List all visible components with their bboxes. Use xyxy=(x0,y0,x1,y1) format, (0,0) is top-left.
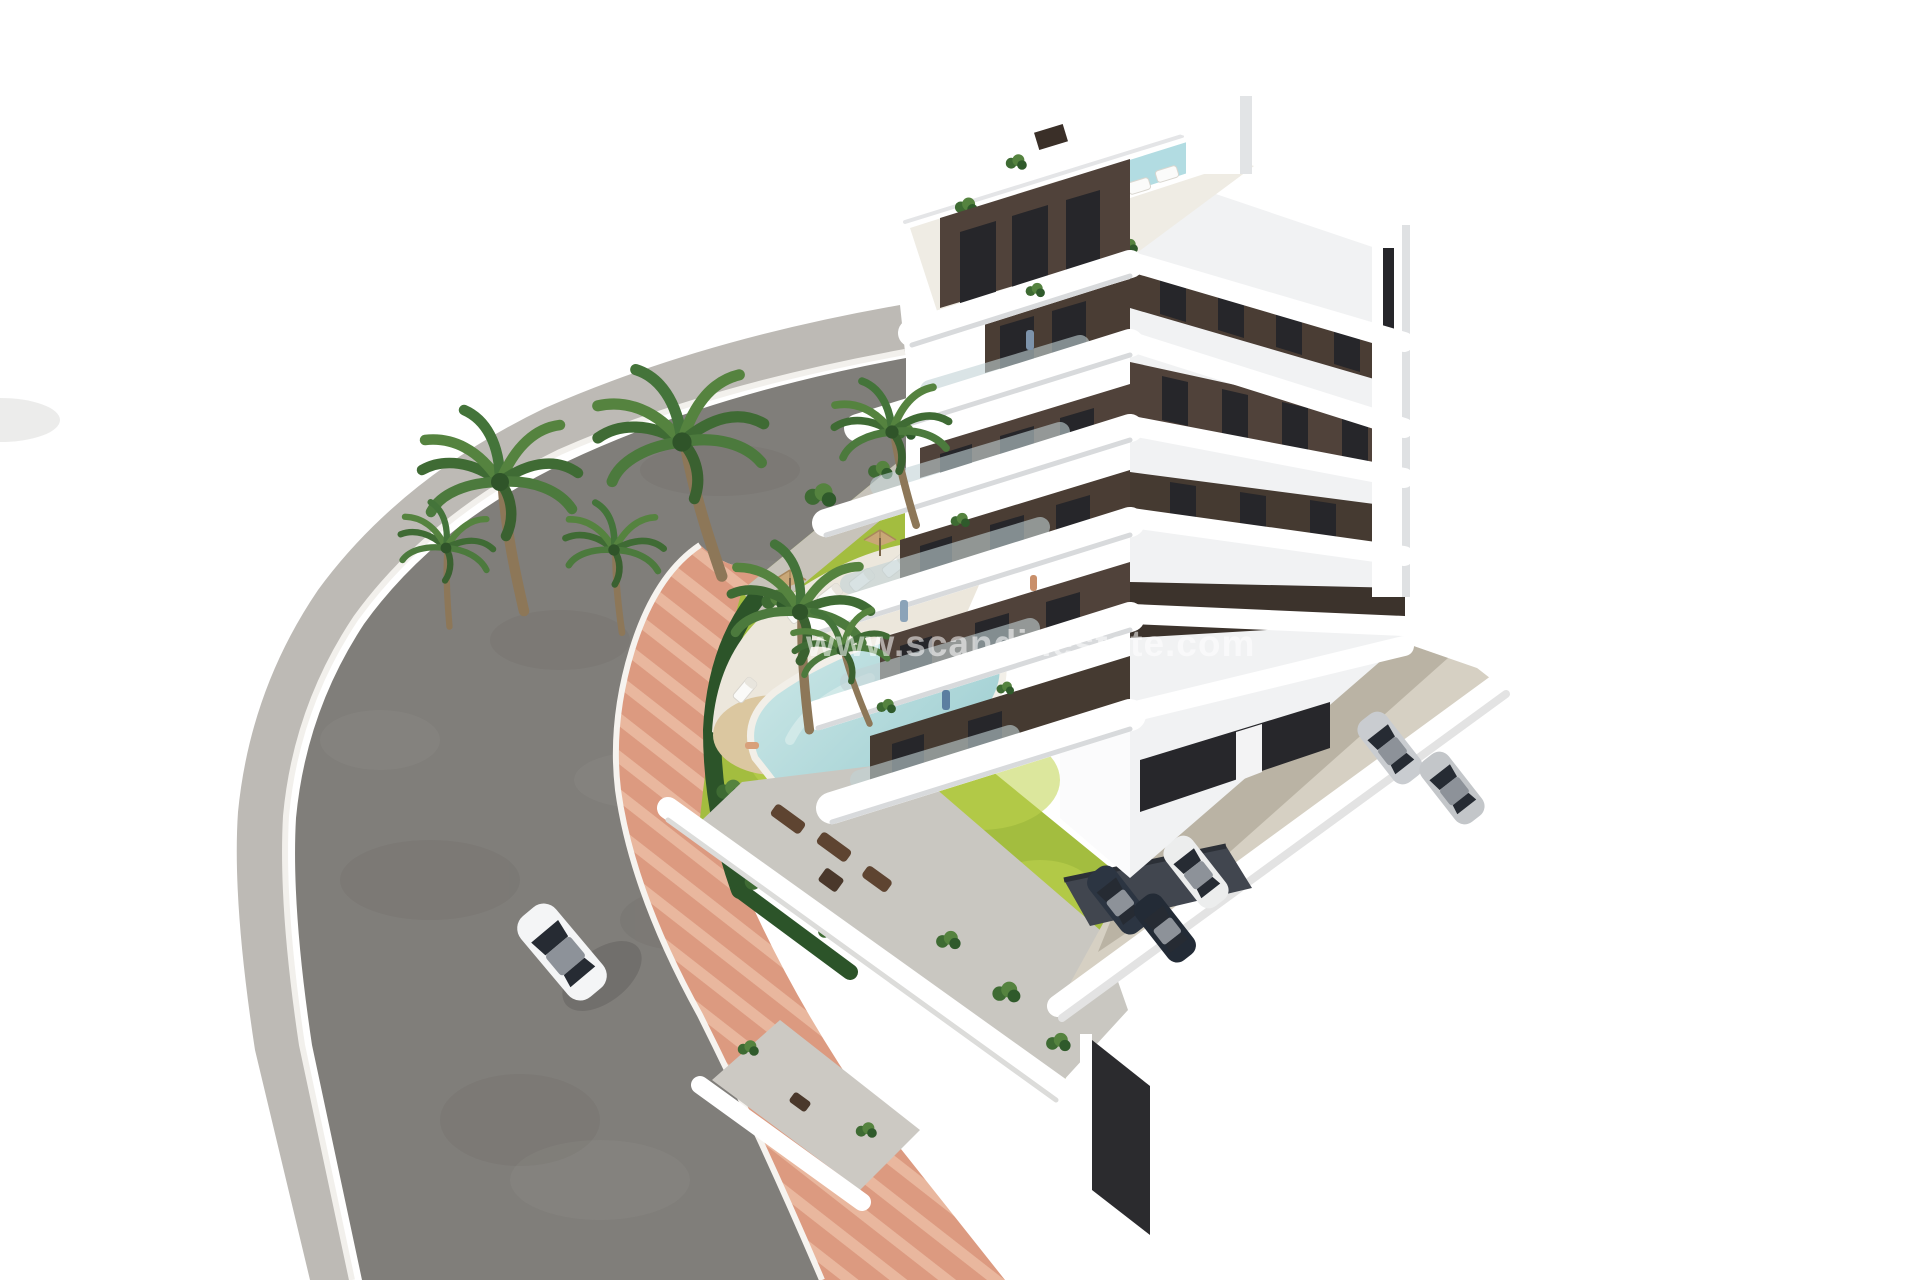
watermark: www.scandinestate.com xyxy=(805,623,1255,664)
render-image: www.scandinestate.com xyxy=(0,0,1920,1280)
